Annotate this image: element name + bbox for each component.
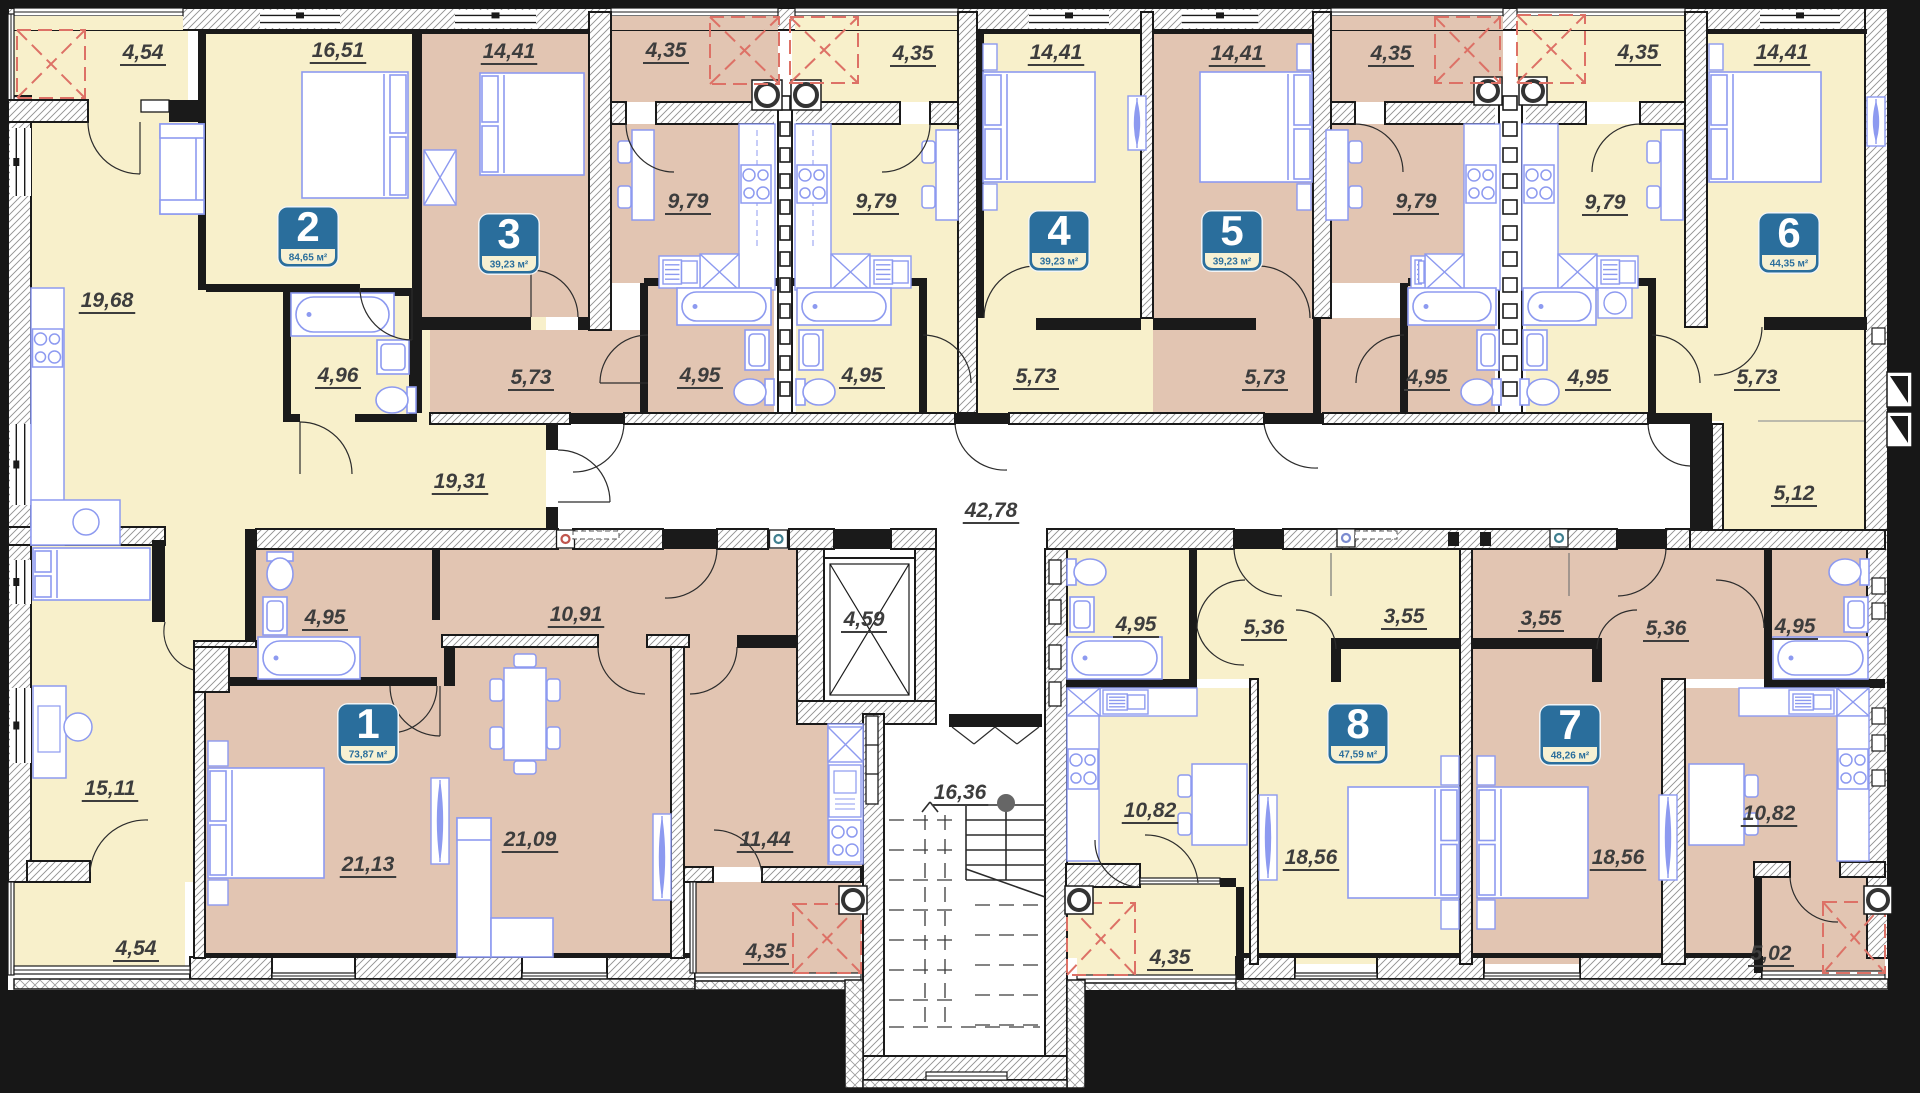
svg-text:19,68: 19,68 bbox=[81, 289, 134, 312]
svg-text:4: 4 bbox=[1047, 207, 1071, 254]
svg-text:44,35 м²: 44,35 м² bbox=[1770, 259, 1809, 270]
svg-text:18,56: 18,56 bbox=[1592, 846, 1645, 869]
svg-text:4,35: 4,35 bbox=[745, 940, 787, 963]
svg-text:14,41: 14,41 bbox=[1030, 41, 1083, 64]
svg-text:5,12: 5,12 bbox=[1774, 482, 1815, 505]
svg-text:10,82: 10,82 bbox=[1743, 802, 1796, 825]
svg-text:4,54: 4,54 bbox=[122, 41, 164, 64]
svg-text:9,79: 9,79 bbox=[1585, 191, 1626, 214]
svg-text:4,35: 4,35 bbox=[645, 39, 687, 62]
svg-text:18,56: 18,56 bbox=[1285, 846, 1338, 869]
svg-text:4,54: 4,54 bbox=[115, 937, 157, 960]
svg-text:4,35: 4,35 bbox=[1617, 41, 1659, 64]
svg-text:1: 1 bbox=[356, 700, 379, 747]
svg-text:7: 7 bbox=[1558, 701, 1581, 748]
svg-text:9,79: 9,79 bbox=[1396, 190, 1437, 213]
svg-text:4,95: 4,95 bbox=[1774, 615, 1816, 638]
svg-text:9,79: 9,79 bbox=[668, 190, 709, 213]
svg-text:10,82: 10,82 bbox=[1124, 799, 1177, 822]
svg-text:5,02: 5,02 bbox=[1751, 942, 1792, 965]
svg-text:2: 2 bbox=[296, 203, 319, 250]
svg-text:3,55: 3,55 bbox=[1384, 605, 1425, 628]
svg-text:84,65 м²: 84,65 м² bbox=[289, 253, 328, 264]
svg-text:21,13: 21,13 bbox=[341, 853, 395, 876]
svg-text:16,36: 16,36 bbox=[934, 781, 987, 804]
svg-text:15,11: 15,11 bbox=[85, 777, 136, 800]
svg-text:5,73: 5,73 bbox=[1245, 366, 1286, 389]
svg-text:10,91: 10,91 bbox=[550, 603, 603, 626]
svg-text:4,95: 4,95 bbox=[1567, 366, 1609, 389]
svg-text:14,41: 14,41 bbox=[483, 40, 536, 63]
svg-text:5,73: 5,73 bbox=[511, 366, 552, 389]
svg-text:39,23 м²: 39,23 м² bbox=[490, 260, 529, 271]
svg-text:5,36: 5,36 bbox=[1646, 617, 1687, 640]
svg-text:4,59: 4,59 bbox=[843, 608, 885, 631]
svg-text:4,96: 4,96 bbox=[317, 364, 359, 387]
svg-text:19,31: 19,31 bbox=[434, 470, 487, 493]
svg-text:5,73: 5,73 bbox=[1737, 366, 1778, 389]
svg-text:6: 6 bbox=[1777, 209, 1800, 256]
svg-text:21,09: 21,09 bbox=[503, 828, 557, 851]
svg-text:4,35: 4,35 bbox=[892, 42, 934, 65]
svg-text:47,59 м²: 47,59 м² bbox=[1339, 750, 1378, 761]
svg-text:3,55: 3,55 bbox=[1521, 607, 1562, 630]
svg-text:4,95: 4,95 bbox=[841, 364, 883, 387]
svg-text:39,23 м²: 39,23 м² bbox=[1213, 257, 1252, 268]
svg-text:14,41: 14,41 bbox=[1756, 41, 1809, 64]
svg-text:5,73: 5,73 bbox=[1016, 365, 1057, 388]
svg-text:42,78: 42,78 bbox=[964, 499, 1018, 522]
svg-text:11,44: 11,44 bbox=[740, 828, 791, 851]
svg-text:5,36: 5,36 bbox=[1244, 616, 1285, 639]
svg-text:4,95: 4,95 bbox=[304, 606, 346, 629]
svg-text:4,35: 4,35 bbox=[1149, 946, 1191, 969]
svg-text:3: 3 bbox=[497, 210, 520, 257]
svg-text:5: 5 bbox=[1220, 207, 1243, 254]
svg-text:14,41: 14,41 bbox=[1211, 42, 1264, 65]
svg-text:4,95: 4,95 bbox=[1115, 613, 1157, 636]
svg-text:16,51: 16,51 bbox=[312, 39, 365, 62]
svg-text:9,79: 9,79 bbox=[856, 190, 897, 213]
svg-text:73,87 м²: 73,87 м² bbox=[349, 750, 388, 761]
svg-text:8: 8 bbox=[1346, 700, 1369, 747]
svg-text:4,95: 4,95 bbox=[679, 364, 721, 387]
svg-text:39,23 м²: 39,23 м² bbox=[1040, 257, 1079, 268]
svg-text:4,95: 4,95 bbox=[1406, 366, 1448, 389]
svg-text:4,35: 4,35 bbox=[1370, 42, 1412, 65]
svg-text:48,26 м²: 48,26 м² bbox=[1551, 751, 1590, 762]
